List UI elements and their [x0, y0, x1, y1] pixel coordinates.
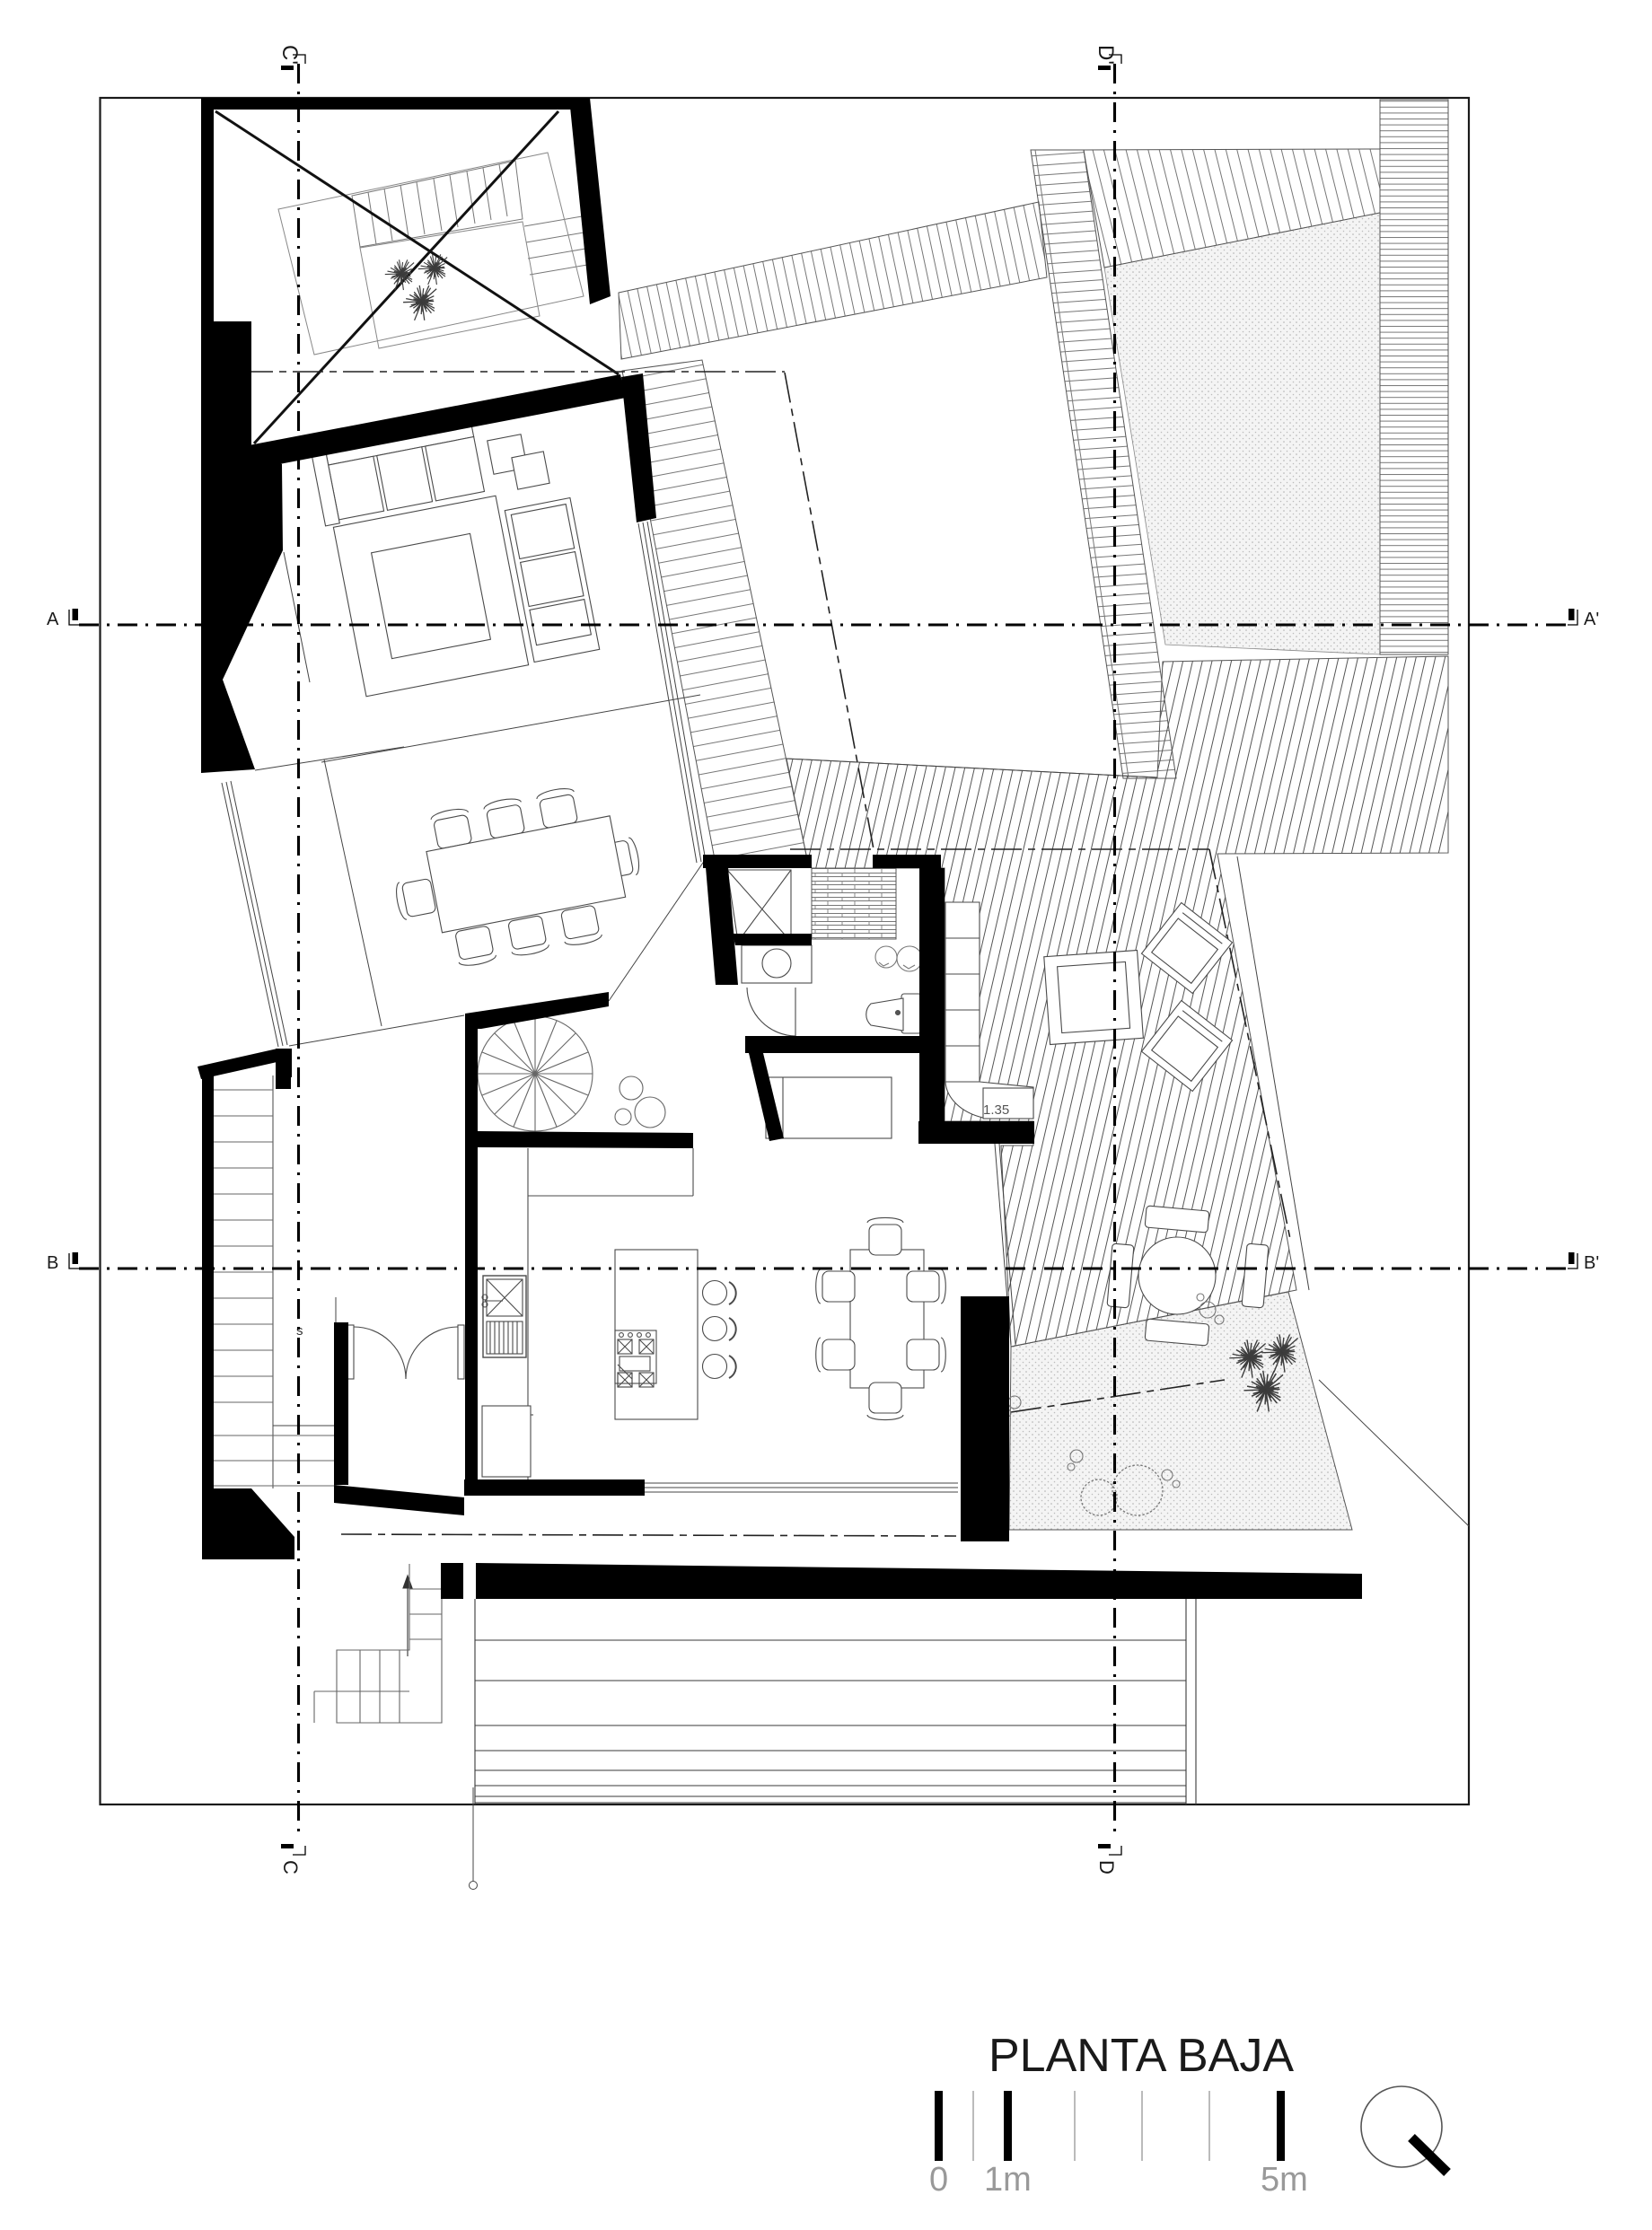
- svg-text:D': D': [1094, 45, 1118, 65]
- svg-text:0: 0: [929, 2161, 948, 2199]
- svg-text:1m: 1m: [984, 2161, 1032, 2199]
- svg-text:s: s: [296, 1323, 303, 1339]
- svg-text:A': A': [1584, 610, 1599, 629]
- svg-text:C: C: [279, 1860, 302, 1874]
- svg-text:B': B': [1584, 1253, 1599, 1273]
- svg-text:5m: 5m: [1261, 2161, 1308, 2199]
- svg-text:A: A: [47, 610, 59, 629]
- svg-text:C': C': [277, 45, 302, 65]
- svg-text:B: B: [47, 1253, 58, 1273]
- svg-text:PLANTA BAJA: PLANTA BAJA: [989, 2030, 1294, 2082]
- svg-text:1.35: 1.35: [983, 1102, 1009, 1118]
- svg-text:D: D: [1095, 1860, 1118, 1874]
